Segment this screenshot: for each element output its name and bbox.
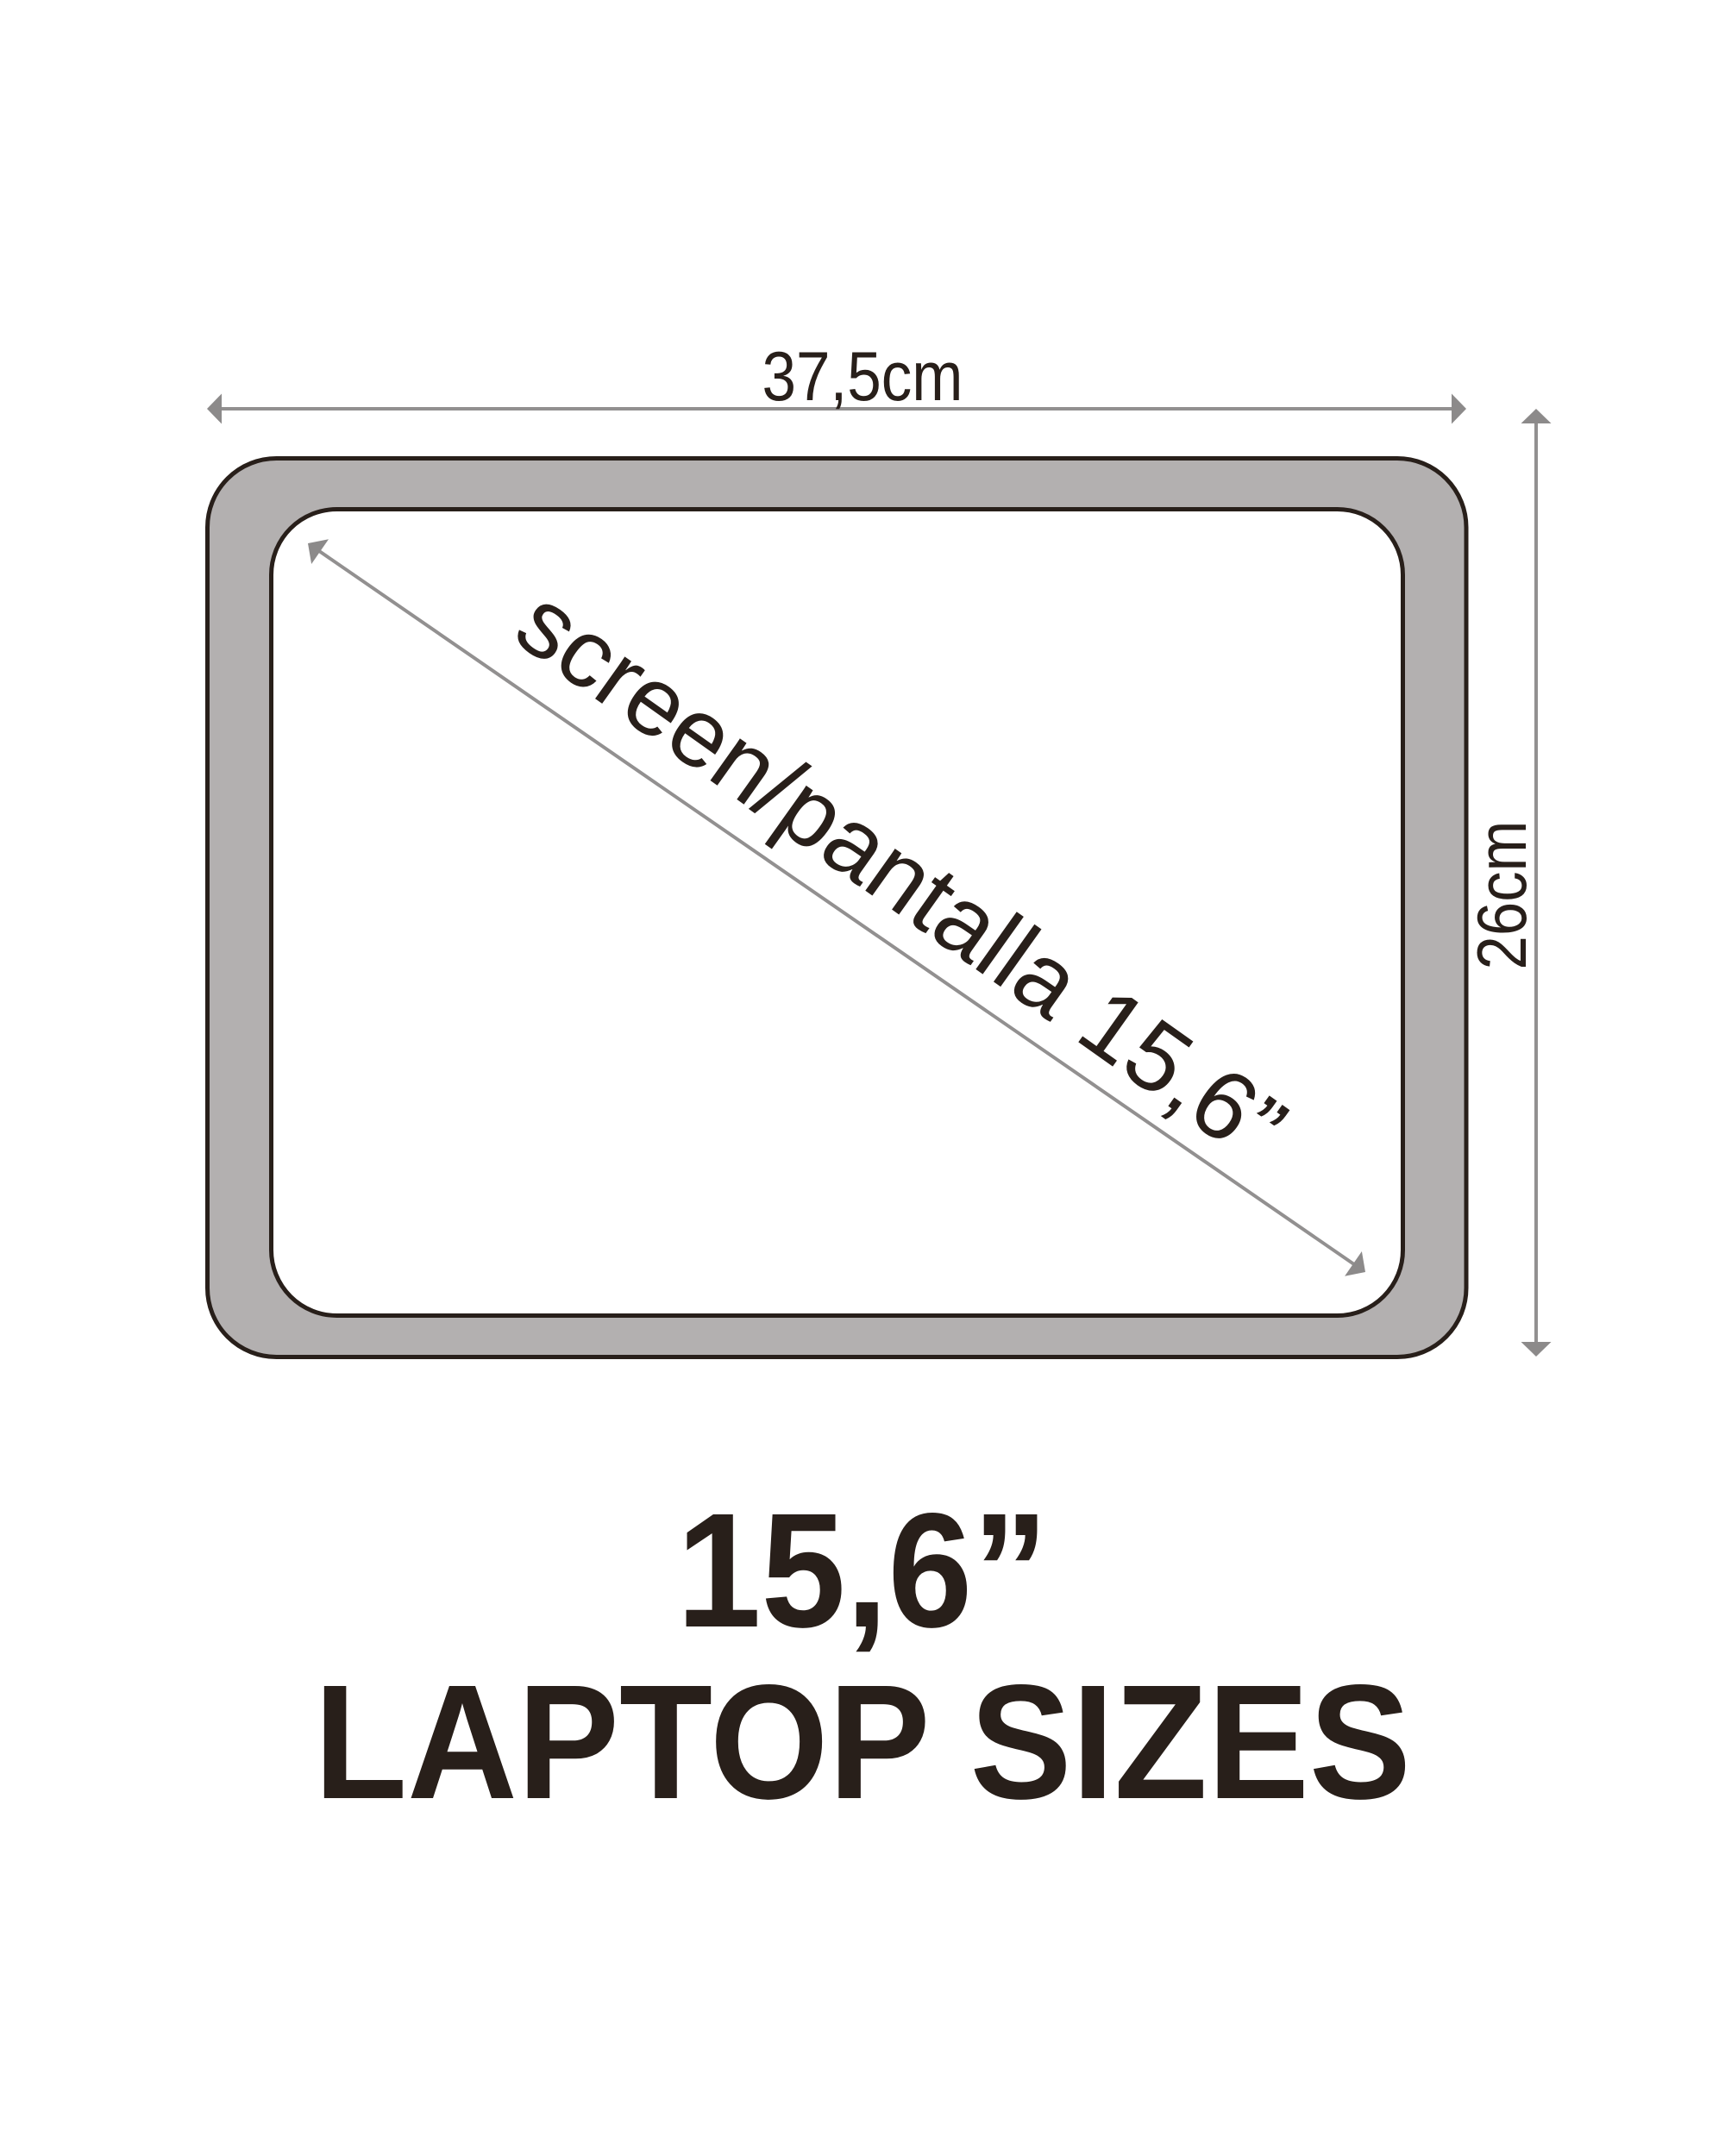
- svg-text:37,5cm: 37,5cm: [762, 338, 963, 416]
- svg-text:26cm: 26cm: [1464, 821, 1541, 970]
- svg-text:15,6”: 15,6”: [677, 1480, 1049, 1662]
- svg-text:LAPTOP SIZES: LAPTOP SIZES: [314, 1651, 1411, 1833]
